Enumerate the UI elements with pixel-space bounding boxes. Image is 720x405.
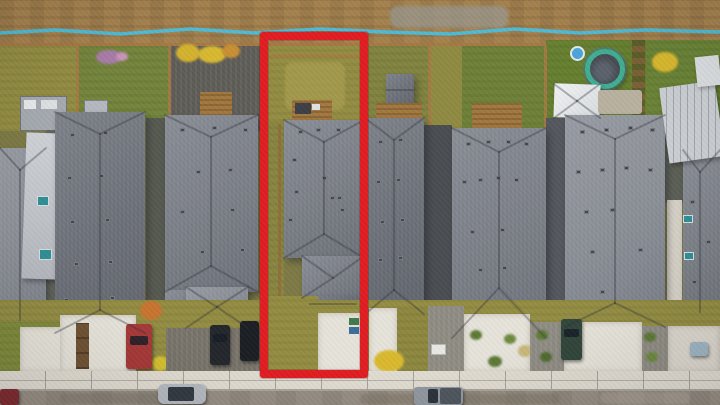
- sidewalk-seam: [0, 380, 720, 381]
- kiddie-pool: [570, 46, 585, 61]
- shrub: [644, 332, 656, 342]
- yellow-tree-front: [374, 350, 404, 372]
- roof-vent: [478, 268, 483, 272]
- truck-window: [428, 389, 438, 403]
- white-bin: [431, 344, 446, 355]
- garden-shed: [386, 74, 414, 106]
- orange-tree: [222, 44, 240, 58]
- property-highlight-outline: [260, 32, 368, 378]
- roof-vent: [108, 260, 113, 264]
- trailer-box: [41, 100, 57, 109]
- car-windshield: [130, 336, 148, 345]
- xeriscape-bed: [428, 306, 464, 372]
- stone-patio: [598, 90, 642, 114]
- pink-bush: [116, 52, 128, 61]
- roof-vent: [67, 176, 72, 180]
- roof-vent: [230, 208, 235, 212]
- small-white-roof: [694, 55, 720, 87]
- roof-vent: [478, 178, 483, 182]
- orange-bush: [140, 301, 162, 320]
- roof-vent: [70, 133, 75, 137]
- roof-vent: [506, 140, 511, 144]
- roof-vent: [396, 178, 401, 182]
- roof-vent: [604, 128, 609, 132]
- roof-vent: [105, 218, 110, 222]
- roof-vent: [378, 258, 383, 262]
- parked-car-dark-1: [210, 325, 230, 365]
- roof-vent: [243, 128, 248, 132]
- roof-vent: [378, 140, 383, 144]
- roof-vent: [103, 131, 108, 135]
- roof-vent: [600, 168, 605, 172]
- roof-vent: [576, 170, 581, 174]
- roof-vent: [380, 220, 385, 224]
- roof-vent: [212, 126, 217, 130]
- roof-vent: [180, 210, 185, 214]
- trailer-box: [24, 100, 36, 109]
- parked-suv-green: [561, 319, 582, 360]
- roof-vent: [648, 168, 653, 172]
- trampoline: [585, 49, 625, 89]
- roof-vent: [628, 126, 633, 130]
- roof-vent: [638, 248, 643, 252]
- roof-vent: [692, 280, 697, 284]
- roof-vent: [650, 128, 655, 132]
- roof-vent: [486, 140, 491, 144]
- roof-vent: [502, 266, 507, 270]
- roof-vent: [398, 256, 403, 260]
- roof-vent: [706, 240, 711, 244]
- roof-vent: [462, 180, 467, 184]
- parked-car-red: [126, 324, 152, 369]
- gravel-pile: [390, 6, 508, 28]
- driveway-1: [60, 315, 136, 372]
- roof-vent: [590, 250, 595, 254]
- skylight: [683, 215, 693, 223]
- roof-vent: [624, 166, 629, 170]
- truck-bed: [440, 388, 461, 404]
- roof-vent: [228, 168, 233, 172]
- roof-vent: [470, 230, 475, 234]
- pallet-stack: [200, 92, 232, 116]
- roof-vent: [180, 128, 185, 132]
- parked-car-lightblue: [690, 342, 708, 356]
- side-gap: [546, 118, 565, 330]
- side-gap: [146, 118, 165, 328]
- roof-vent: [376, 180, 381, 184]
- xeriscape-bed: [530, 322, 564, 372]
- roof-vent: [496, 176, 501, 180]
- roof-vent: [580, 130, 585, 134]
- car-windshield: [213, 334, 227, 342]
- roof-vent: [466, 142, 471, 146]
- house-roof-6: [565, 115, 665, 327]
- skylight: [37, 196, 49, 206]
- car-glass: [168, 387, 194, 401]
- roof-vent: [398, 138, 403, 142]
- shrub: [646, 352, 658, 362]
- skylight: [684, 252, 694, 260]
- house-roof-4: [365, 118, 424, 314]
- roof-vent: [584, 210, 589, 214]
- yellow-tree: [176, 44, 200, 62]
- side-alley: [424, 125, 452, 317]
- shrub: [540, 352, 552, 362]
- roof-vent: [74, 262, 79, 266]
- roof-vent: [240, 248, 245, 252]
- car-windshield: [564, 329, 579, 337]
- roof-vent: [70, 220, 75, 224]
- roof-vent: [690, 200, 695, 204]
- roof-vent: [514, 178, 519, 182]
- parked-car-dark-2: [240, 321, 259, 361]
- roof-vent: [524, 142, 529, 146]
- roof-vent: [610, 208, 615, 212]
- house-roof-2: [165, 115, 258, 292]
- metal-roof-section: [659, 80, 720, 163]
- shrub: [504, 334, 516, 344]
- road-patch: [600, 392, 690, 404]
- gazebo-roof: [553, 83, 600, 119]
- backyard-deck: [472, 103, 522, 130]
- roof-vent: [99, 174, 104, 178]
- shrub: [488, 356, 502, 367]
- aerial-photo: [0, 0, 720, 405]
- roof-vent: [400, 218, 405, 222]
- roof-vent: [200, 250, 205, 254]
- shrub: [536, 330, 548, 340]
- planter-boxes: [76, 323, 89, 369]
- shrub: [470, 330, 482, 340]
- skylight: [39, 249, 52, 260]
- roof-vent: [600, 290, 605, 294]
- roof-vent: [196, 170, 201, 174]
- yellow-tree: [652, 52, 678, 72]
- roof-vent: [500, 228, 505, 232]
- street-car-darkred: [0, 389, 19, 405]
